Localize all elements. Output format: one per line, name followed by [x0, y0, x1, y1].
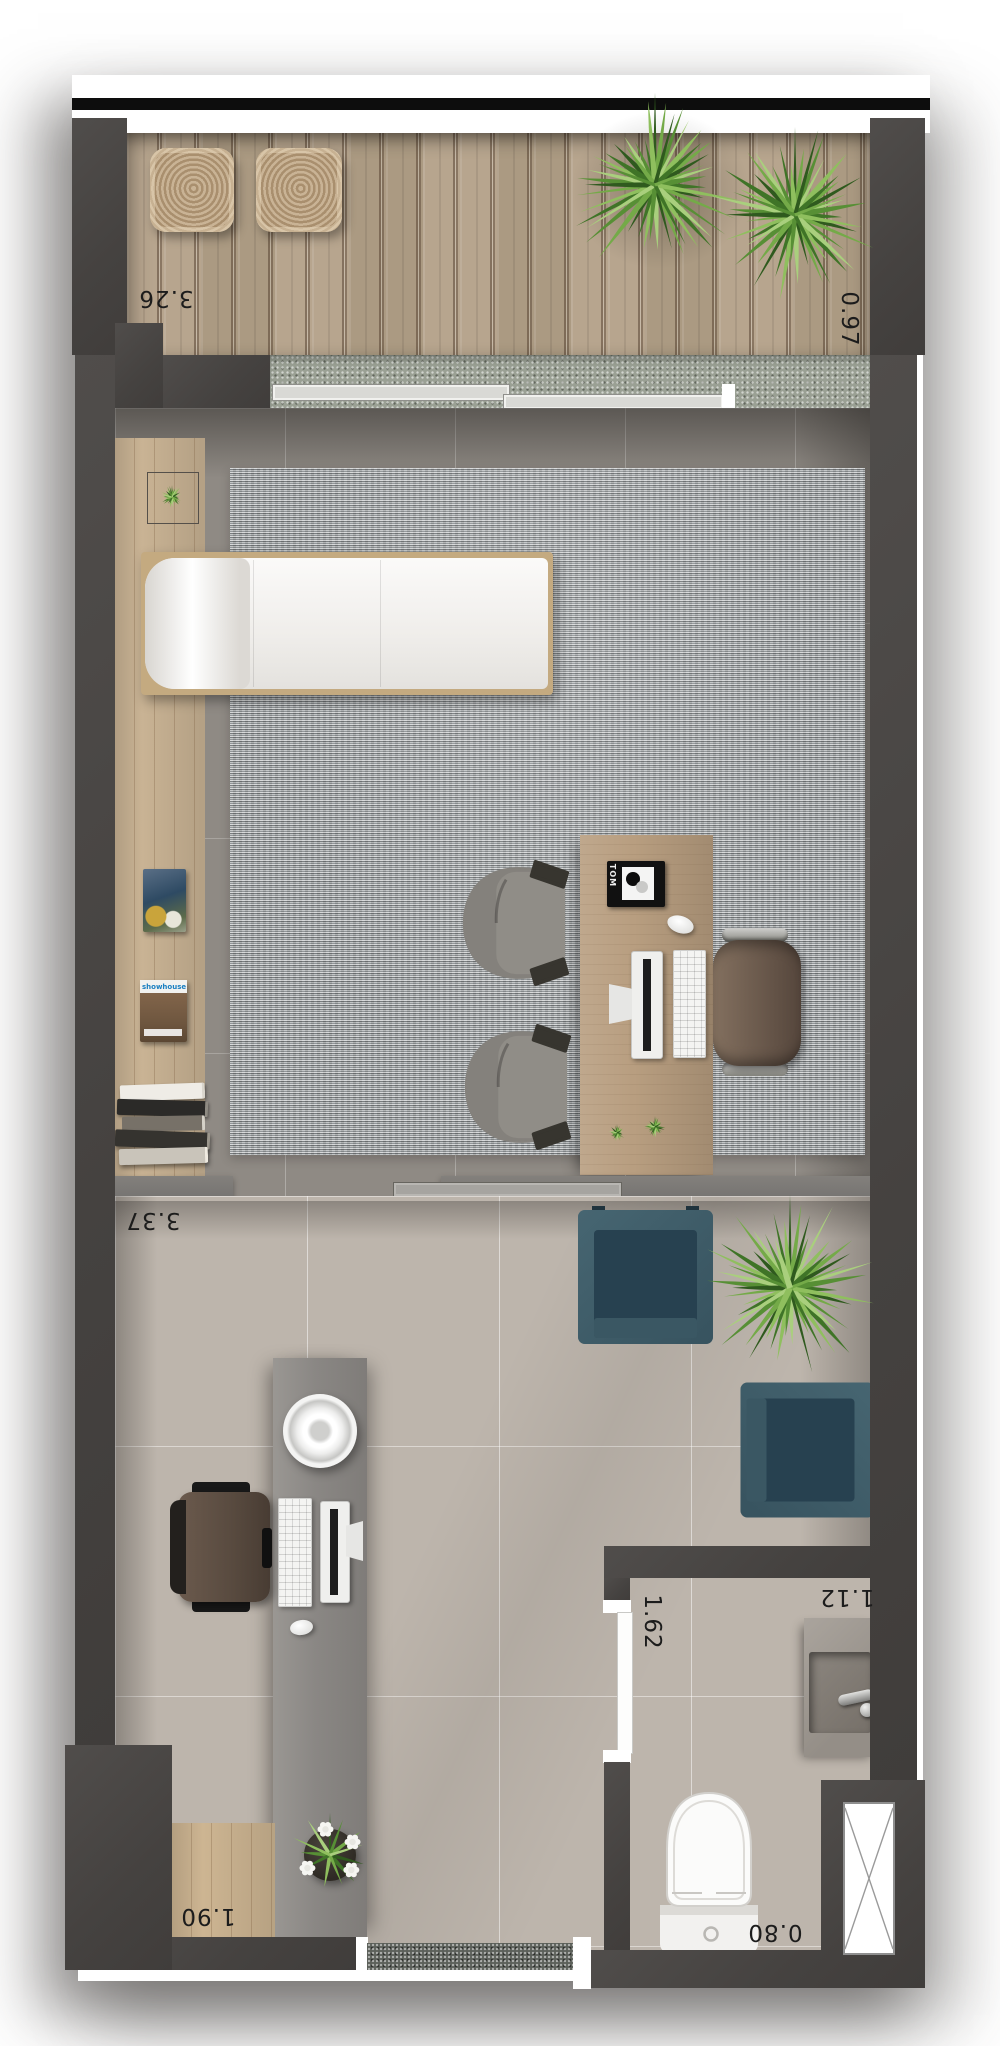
- wood-stump-stool: [150, 148, 234, 232]
- desk-monitor: [631, 951, 663, 1059]
- entry-mat: [367, 1943, 573, 1970]
- window-wall: [115, 323, 163, 408]
- shaft-box: [843, 1802, 895, 1955]
- dimension-bath-corridor: 1.62: [639, 1594, 665, 1649]
- chair-support: [262, 1528, 272, 1568]
- toilet: [658, 1787, 760, 1957]
- lobby-plant: [692, 1190, 888, 1386]
- wingback-armchair: [457, 1022, 575, 1152]
- decor-ring-bowl: [283, 1394, 357, 1468]
- book: [119, 1147, 208, 1165]
- corner-block-bottom-left: [65, 1745, 172, 1970]
- cushion-seam: [253, 560, 254, 687]
- potted-plant: [695, 115, 895, 315]
- exterior-wall-left: [75, 355, 115, 1745]
- magazine-cover: [143, 869, 186, 932]
- dimension-basin-width: 1.12: [819, 1584, 874, 1610]
- wood-stump-stool: [256, 148, 342, 232]
- bathroom-wall-stub: [604, 1578, 630, 1602]
- door-jamb: [722, 384, 735, 408]
- magazine-caption-strip: [144, 1029, 182, 1036]
- monitor-screen: [643, 959, 651, 1051]
- exterior-wall-right: [870, 355, 917, 1780]
- design-book: TOM: [607, 861, 665, 907]
- book-stack: [112, 1082, 212, 1172]
- office-chair: [710, 928, 804, 1078]
- sliding-door-panel: [272, 384, 510, 401]
- book-cover-art: [622, 867, 654, 900]
- door-jamb: [573, 1937, 591, 1989]
- dimension-balcony-width: 3.26: [138, 285, 193, 311]
- white-flower-plant: [260, 1785, 400, 1925]
- magazine-title-text: showhouse: [142, 983, 186, 991]
- exterior-wall-left: [72, 118, 127, 355]
- reception-chair: [168, 1480, 276, 1614]
- floor-plan: showhouse TOM: [0, 0, 1000, 2046]
- wall-bench: [115, 438, 205, 1190]
- pocket-sliding-door: [393, 1182, 622, 1197]
- desk-plant: [622, 1094, 688, 1160]
- chair-seat: [178, 1492, 270, 1602]
- cushion-seam: [380, 560, 381, 687]
- chair-seat: [713, 940, 801, 1066]
- wingback-armchair: [455, 858, 573, 988]
- dimension-balcony-depth: 0.97: [836, 291, 862, 346]
- book: [117, 1099, 208, 1117]
- daybed-roll-pillow: [145, 558, 250, 689]
- book-spine-text: TOM: [608, 864, 617, 887]
- dimension-living-width: 3.37: [125, 1207, 180, 1233]
- window-wall: [163, 355, 270, 408]
- top-border-band: [72, 75, 930, 98]
- desk-keyboard: [673, 950, 706, 1058]
- teal-armchair: [739, 1383, 879, 1518]
- monitor-stand: [609, 984, 632, 1024]
- magazine-cover-showhouse: showhouse: [140, 980, 187, 1042]
- magazine-masthead: showhouse: [140, 980, 187, 993]
- potted-plant-small: [137, 462, 207, 532]
- reception-keyboard: [278, 1498, 312, 1607]
- dimension-toilet-width: 0.80: [747, 1919, 802, 1945]
- dimension-entry-width: 1.90: [180, 1903, 235, 1929]
- bathroom-wall-lower: [604, 1762, 630, 1957]
- bathroom-door-leaf: [617, 1612, 633, 1754]
- exterior-wall-bottom: [590, 1950, 921, 1988]
- section-line: [72, 98, 930, 110]
- monitor-stand: [346, 1521, 363, 1561]
- monitor-screen: [330, 1509, 338, 1595]
- chair-backrest: [170, 1500, 186, 1594]
- reception-monitor: [320, 1501, 350, 1603]
